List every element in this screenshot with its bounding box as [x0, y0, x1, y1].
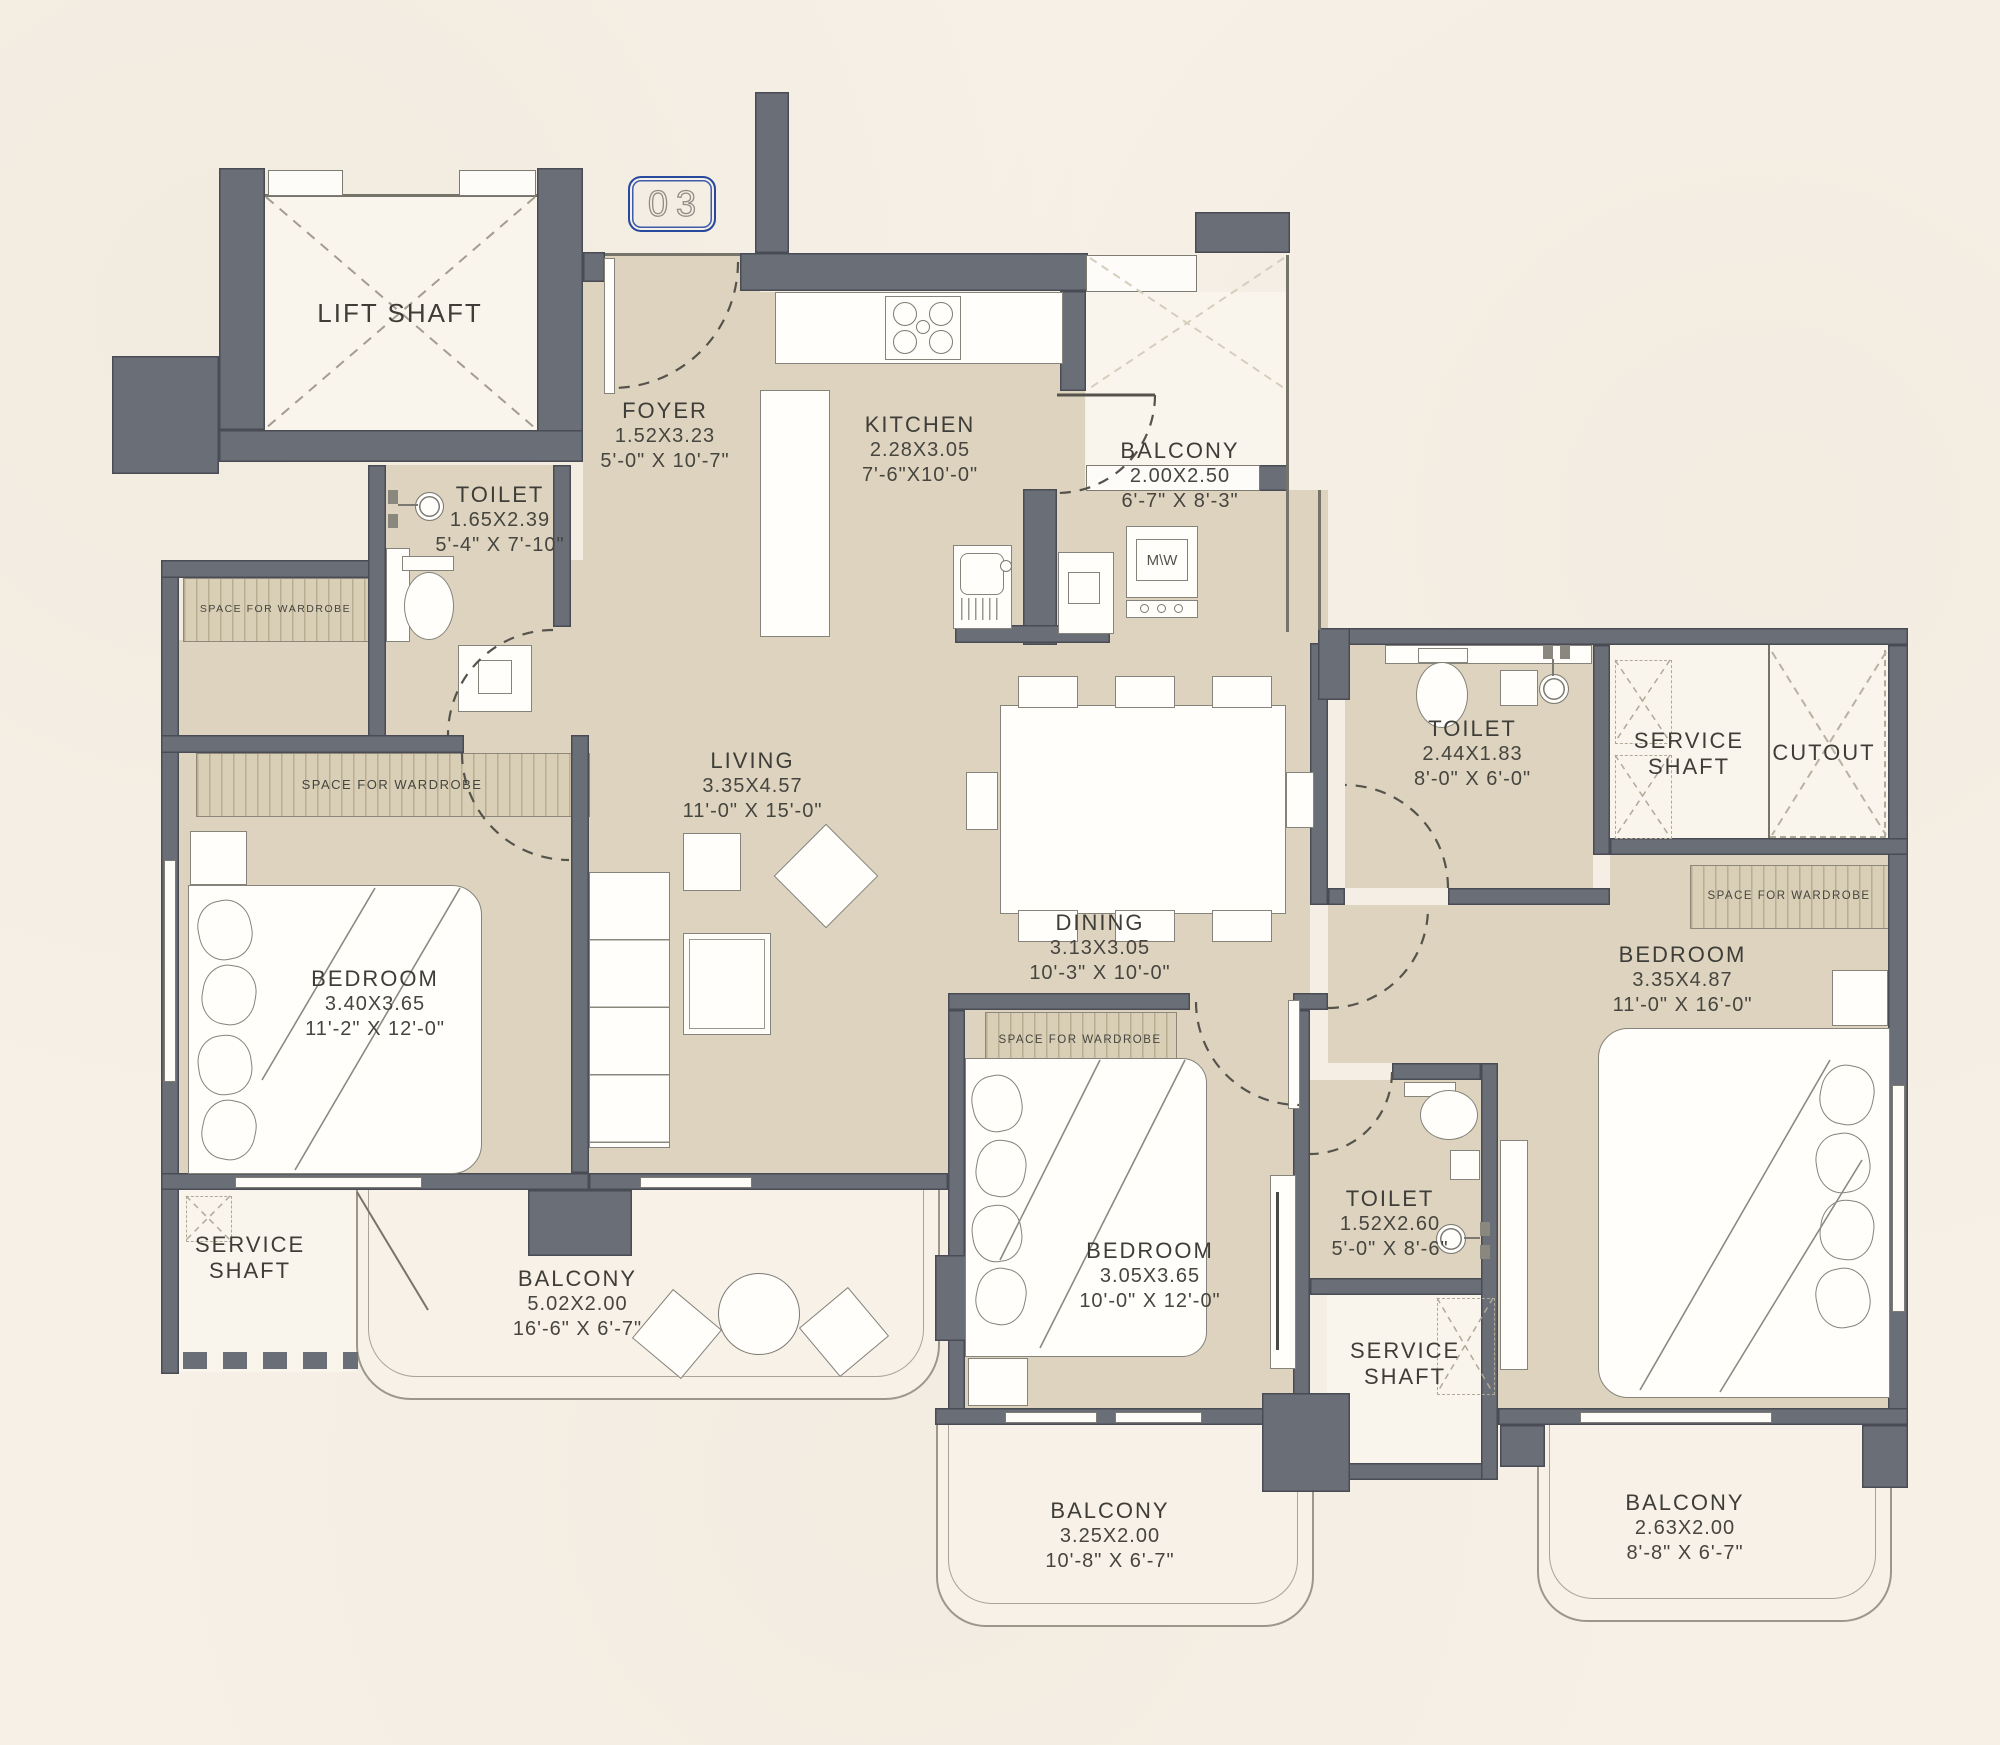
- knob: [1174, 604, 1183, 613]
- stove-burner: [893, 330, 917, 354]
- label-wardrobe-bedroom-left: SPACE FOR WARDROBE: [196, 753, 588, 815]
- tv-unit: [1270, 1175, 1296, 1369]
- wall-pier: [1500, 1425, 1545, 1467]
- window: [1892, 1085, 1905, 1312]
- dresser: [1500, 1140, 1528, 1370]
- wall: [161, 560, 386, 578]
- window: [164, 860, 176, 1082]
- label-bedroom-right: BEDROOM 3.35X4.87 11'-0" X 16'-0": [1575, 942, 1790, 1018]
- floor-plan: M\W: [0, 0, 2000, 1745]
- passage-floor: [571, 560, 758, 643]
- wall: [219, 430, 583, 462]
- wall: [1060, 291, 1086, 391]
- label-balcony-bottom-right: BALCONY 2.63X2.00 8'-8" X 6'-7": [1575, 1490, 1795, 1566]
- label-service-shaft-right: SERVICE SHAFT: [1608, 728, 1770, 780]
- lift-recess: [459, 170, 536, 196]
- wall: [1392, 1063, 1481, 1080]
- label-service-shaft-middle: SERVICE SHAFT: [1330, 1338, 1480, 1390]
- wall: [219, 168, 265, 430]
- wash-basin: [1500, 670, 1538, 706]
- room-size-ft: 5'-4" X 7'-10": [400, 533, 600, 558]
- room-name: LIVING: [650, 748, 855, 774]
- label-wardrobe-bedroom-right: SPACE FOR WARDROBE: [1690, 865, 1888, 927]
- room-name: FOYER: [565, 398, 765, 424]
- room-name: BALCONY: [1080, 438, 1280, 464]
- tap-icon: [1480, 1245, 1490, 1259]
- label-living: LIVING 3.35X4.57 11'-0" X 15'-0": [650, 748, 855, 824]
- label-lift-shaft: LIFT SHAFT: [290, 300, 510, 326]
- room-size-m: 2.44X1.83: [1370, 742, 1575, 767]
- wardrobe-nook-floor: [179, 640, 368, 735]
- room-size-ft: 5'-0" X 8'-6": [1300, 1237, 1480, 1262]
- wall: [755, 92, 789, 253]
- room-size-m: 2.28X3.05: [820, 438, 1020, 463]
- bedside-table: [190, 831, 247, 885]
- divider-line: [1318, 490, 1321, 630]
- dining-table: [1000, 705, 1286, 914]
- room-size-ft: 16'-6" X 6'-7": [470, 1317, 685, 1342]
- window: [1115, 1412, 1202, 1423]
- knob: [1157, 604, 1166, 613]
- dining-chair: [1212, 910, 1272, 942]
- dining-chair: [966, 772, 998, 830]
- balcony-rail-line: [1286, 255, 1289, 632]
- label-service-shaft-left: SERVICE SHAFT: [170, 1232, 330, 1284]
- label-balcony-bottom-left: BALCONY 5.02X2.00 16'-6" X 6'-7": [470, 1266, 685, 1342]
- coffee-table-inner: [689, 939, 765, 1029]
- room-size-m: 3.25X2.00: [1000, 1524, 1220, 1549]
- unit-number-badge: 03: [628, 176, 716, 232]
- wash-basin: [478, 660, 512, 694]
- tap-icon: [1480, 1222, 1490, 1236]
- threshold-line: [605, 253, 740, 256]
- room-name: TOILET: [400, 482, 600, 508]
- wall: [1023, 489, 1057, 645]
- window: [235, 1177, 422, 1188]
- room-name: BEDROOM: [1045, 1238, 1255, 1264]
- wc-toilet-icon: [404, 572, 454, 640]
- sink-basin: [960, 553, 1004, 595]
- room-name: BALCONY: [1575, 1490, 1795, 1516]
- room-name: SERVICE SHAFT: [1350, 1338, 1460, 1390]
- wc-cistern: [402, 556, 454, 571]
- sofa: [589, 872, 670, 1148]
- room-size-m: 1.52X3.23: [565, 424, 765, 449]
- label-wardrobe-bedroom-middle: SPACE FOR WARDROBE: [985, 1012, 1175, 1067]
- room-name: KITCHEN: [820, 412, 1020, 438]
- door-leaf: [604, 258, 615, 394]
- room-name: TOILET: [1300, 1186, 1480, 1212]
- tap-icon: [388, 514, 398, 528]
- wall: [1318, 628, 1350, 700]
- balcony-table: [718, 1273, 800, 1355]
- wall: [1481, 1063, 1498, 1480]
- stove-burner: [929, 302, 953, 326]
- room-size-m: 1.65X2.39: [400, 508, 600, 533]
- wall: [948, 1010, 965, 1425]
- room-size-ft: 10'-0" X 12'-0": [1045, 1289, 1255, 1314]
- wall: [1310, 1278, 1498, 1295]
- side-table: [683, 833, 741, 891]
- door-leaf: [1288, 1000, 1300, 1109]
- room-size-ft: 8'-8" X 6'-7": [1575, 1541, 1795, 1566]
- balcony-door-opening: [640, 1177, 752, 1188]
- wall: [740, 253, 1088, 291]
- stove-burner: [893, 302, 917, 326]
- window: [1086, 255, 1197, 292]
- room-size-ft: 11'-2" X 12'-0": [270, 1017, 480, 1042]
- coffee-table: [683, 933, 771, 1035]
- microwave-label: M\W: [1136, 539, 1188, 581]
- wall: [1610, 838, 1908, 855]
- label-balcony-top: BALCONY 2.00X2.50 6'-7" X 8'-3": [1080, 438, 1280, 514]
- wall: [948, 993, 1190, 1010]
- wc-cistern: [1418, 648, 1468, 663]
- wash-basin: [1450, 1150, 1480, 1180]
- sink-drainboard: [961, 598, 1001, 620]
- wall: [1448, 888, 1610, 905]
- wall-pier: [528, 1190, 632, 1256]
- room-size-ft: 5'-0" X 10'-7": [565, 449, 765, 474]
- label-bedroom-middle: BEDROOM 3.05X3.65 10'-0" X 12'-0": [1045, 1238, 1255, 1314]
- room-name: CUTOUT: [1758, 740, 1890, 766]
- label-bedroom-left: BEDROOM 3.40X3.65 11'-2" X 12'-0": [270, 966, 480, 1042]
- room-name: BALCONY: [1000, 1498, 1220, 1524]
- room-name: SERVICE SHAFT: [195, 1232, 305, 1284]
- tap-icon: [1560, 645, 1570, 659]
- room-size-ft: 11'-0" X 15'-0": [650, 799, 855, 824]
- wall-pier: [1862, 1425, 1908, 1488]
- wc-toilet-icon: [1420, 1090, 1478, 1140]
- label-wardrobe-nook: SPACE FOR WARDROBE: [183, 578, 368, 640]
- bedside-table: [1832, 970, 1888, 1026]
- wall: [112, 356, 219, 474]
- room-size-m: 3.40X3.65: [270, 992, 480, 1017]
- dining-chair: [1286, 772, 1314, 828]
- room-size-ft: 8'-0" X 6'-0": [1370, 767, 1575, 792]
- room-name: LIFT SHAFT: [290, 300, 510, 326]
- room-size-m: 5.02X2.00: [470, 1292, 685, 1317]
- dining-chair: [1212, 676, 1272, 708]
- knob: [1140, 604, 1149, 613]
- tap-icon: [1543, 645, 1553, 659]
- room-size-m: 1.52X2.60: [1300, 1212, 1480, 1237]
- stove-burner: [929, 330, 953, 354]
- label-dining: DINING 3.13X3.05 10'-3" X 10'-0": [995, 910, 1205, 986]
- room-name: BEDROOM: [1575, 942, 1790, 968]
- stove-burner: [916, 320, 930, 334]
- room-name: BEDROOM: [270, 966, 480, 992]
- room-size-ft: 11'-0" X 16'-0": [1575, 993, 1790, 1018]
- room-size-m: 2.00X2.50: [1080, 464, 1280, 489]
- label-foyer: FOYER 1.52X3.23 5'-0" X 10'-7": [565, 398, 765, 474]
- service-shaft-dashes: [183, 1352, 358, 1369]
- room-size-ft: 7'-6"X10'-0": [820, 463, 1020, 488]
- room-size-m: 3.35X4.57: [650, 774, 855, 799]
- lift-recess: [268, 170, 343, 196]
- room-size-m: 3.35X4.87: [1575, 968, 1790, 993]
- room-size-ft: 10'-8" X 6'-7": [1000, 1549, 1220, 1574]
- label-kitchen: KITCHEN 2.28X3.05 7'-6"X10'-0": [820, 412, 1020, 488]
- room-name: TOILET: [1370, 716, 1575, 742]
- wall: [1318, 628, 1908, 645]
- faucet: [1000, 560, 1012, 572]
- wash-basin: [1068, 572, 1100, 604]
- label-cutout: CUTOUT: [1758, 740, 1890, 766]
- dining-chair: [1115, 676, 1175, 708]
- wall: [368, 465, 386, 753]
- wall: [583, 252, 605, 282]
- room-size-ft: 10'-3" X 10'-0": [995, 961, 1205, 986]
- room-size-m: 2.63X2.00: [1575, 1516, 1795, 1541]
- label-balcony-bottom-middle: BALCONY 3.25X2.00 10'-8" X 6'-7": [1000, 1498, 1220, 1574]
- room-size-m: 3.13X3.05: [995, 936, 1205, 961]
- room-name: BALCONY: [470, 1266, 685, 1292]
- corridor-floor: [1328, 905, 1481, 1063]
- label-toilet-right: TOILET 2.44X1.83 8'-0" X 6'-0": [1370, 716, 1575, 792]
- wall: [1328, 888, 1345, 905]
- bedside-table: [968, 1358, 1028, 1406]
- microwave-unit: M\W: [1126, 526, 1198, 598]
- tap-icon: [388, 490, 398, 504]
- label-toilet-middle: TOILET 1.52X2.60 5'-0" X 8'-6": [1300, 1186, 1480, 1262]
- room-name: SERVICE SHAFT: [1629, 728, 1749, 780]
- room-size-ft: 6'-7" X 8'-3": [1080, 489, 1280, 514]
- window: [1580, 1412, 1772, 1423]
- dining-chair: [1018, 676, 1078, 708]
- tv-screen: [1276, 1192, 1279, 1350]
- room-size-m: 3.05X3.65: [1045, 1264, 1255, 1289]
- wall: [1195, 212, 1290, 253]
- room-name: DINING: [995, 910, 1205, 936]
- label-toilet-top-left: TOILET 1.65X2.39 5'-4" X 7'-10": [400, 482, 600, 558]
- shower-rosette-icon: [1539, 674, 1569, 704]
- window: [1005, 1412, 1097, 1423]
- wall: [161, 735, 464, 753]
- wall-pier: [1262, 1393, 1350, 1492]
